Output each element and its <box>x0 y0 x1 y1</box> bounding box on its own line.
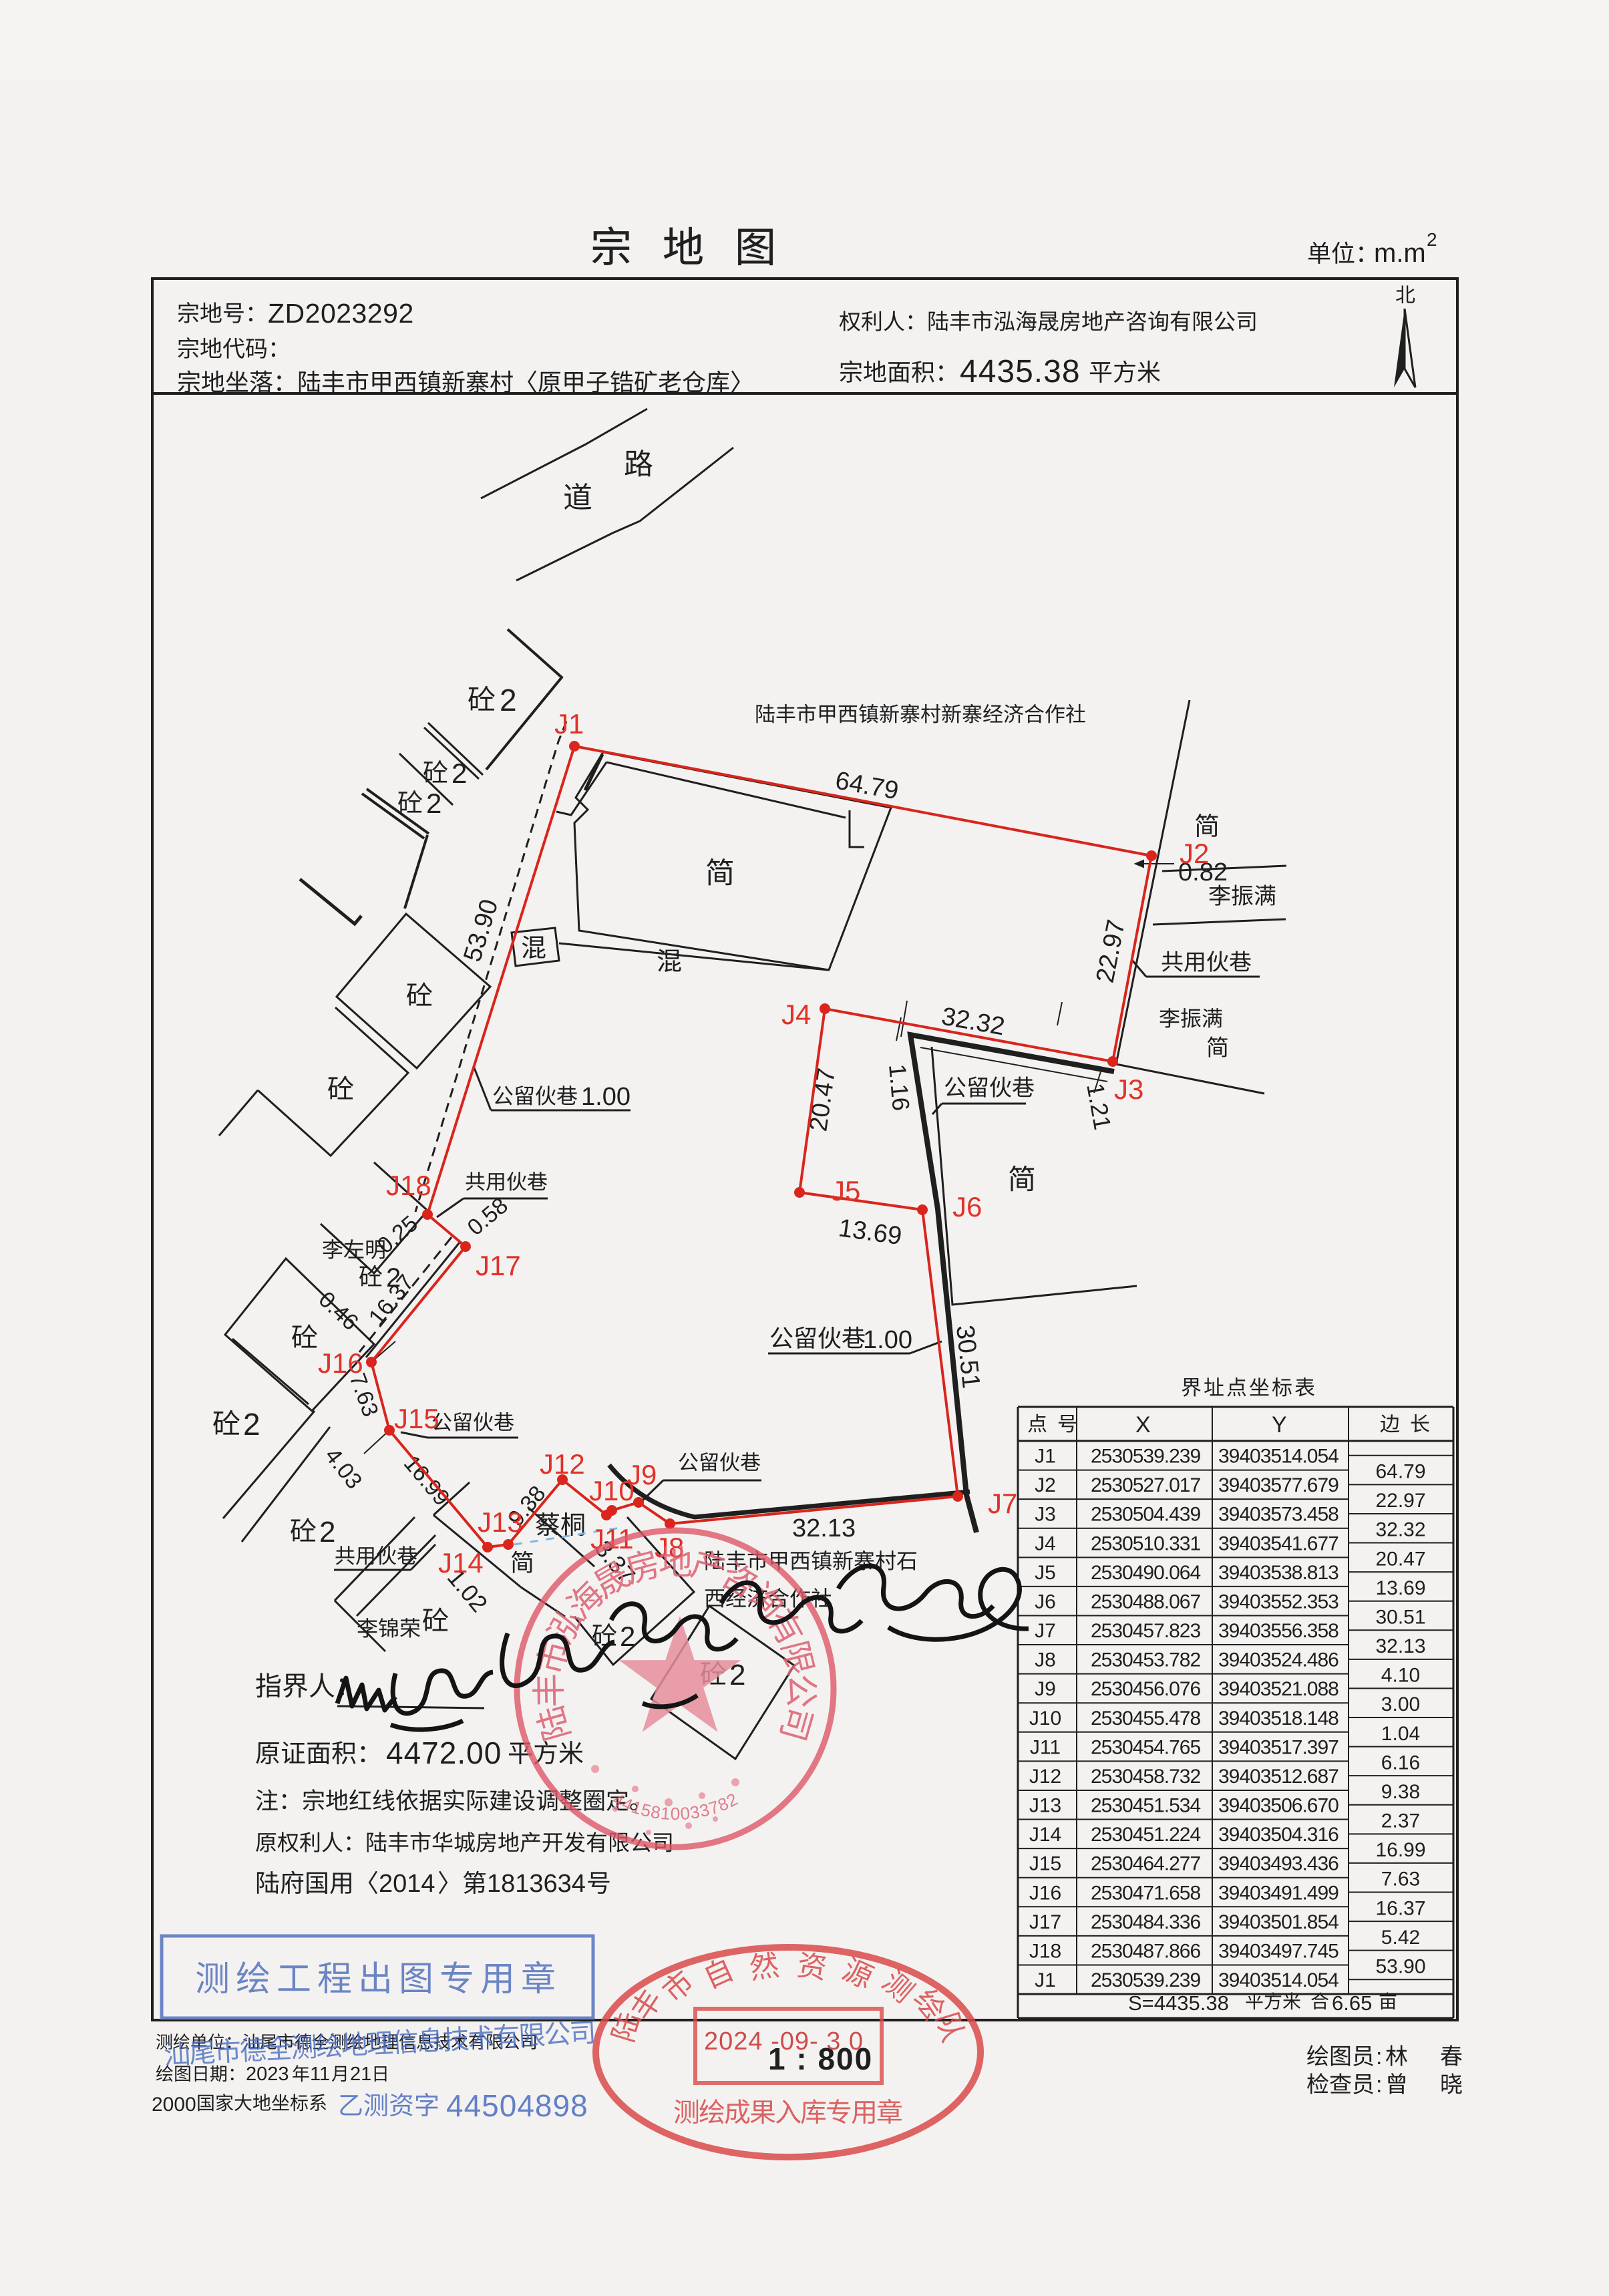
svg-text:J6: J6 <box>952 1191 982 1222</box>
svg-text:2.37: 2.37 <box>1381 1810 1420 1832</box>
svg-text:32.13: 32.13 <box>1375 1635 1425 1657</box>
svg-text:J2: J2 <box>1035 1474 1056 1496</box>
svg-text:39403556.358: 39403556.358 <box>1218 1620 1338 1642</box>
svg-text:J16: J16 <box>1029 1882 1061 1904</box>
svg-text:39403538.813: 39403538.813 <box>1218 1562 1338 1584</box>
svg-text:J13: J13 <box>1029 1795 1061 1817</box>
svg-text:J16: J16 <box>318 1347 363 1379</box>
svg-text::: : <box>1376 2072 1382 2098</box>
svg-text:ZD2023292: ZD2023292 <box>268 298 414 329</box>
svg-text:16.99: 16.99 <box>1375 1839 1425 1861</box>
svg-text:2530510.331: 2530510.331 <box>1091 1532 1200 1554</box>
svg-text:J17: J17 <box>476 1250 521 1281</box>
svg-text:J2: J2 <box>1180 838 1209 869</box>
svg-text:2530488.067: 2530488.067 <box>1091 1591 1200 1613</box>
svg-text:J1: J1 <box>1035 1446 1056 1468</box>
svg-text:J3: J3 <box>1035 1504 1056 1526</box>
svg-text:39403497.745: 39403497.745 <box>1218 1940 1338 1962</box>
svg-text:2: 2 <box>500 683 517 717</box>
svg-text:2530504.439: 2530504.439 <box>1091 1504 1200 1526</box>
svg-text:2530454.765: 2530454.765 <box>1091 1736 1200 1758</box>
svg-text:J8: J8 <box>655 1532 684 1563</box>
svg-text:2530451.534: 2530451.534 <box>1091 1795 1200 1817</box>
svg-text:3.00: 3.00 <box>1381 1693 1420 1715</box>
svg-text:53.90: 53.90 <box>1375 1955 1425 1977</box>
svg-text:16.37: 16.37 <box>1375 1897 1425 1919</box>
svg-text:32.32: 32.32 <box>1375 1519 1425 1541</box>
svg-text:7.63: 7.63 <box>1381 1868 1420 1891</box>
svg-text:0: 0 <box>671 1804 680 1824</box>
svg-text:2: 2 <box>452 758 467 789</box>
svg-text:J5: J5 <box>1035 1562 1056 1584</box>
svg-text:J8: J8 <box>1035 1649 1056 1671</box>
svg-text:J6: J6 <box>1035 1591 1056 1613</box>
svg-text:2530456.076: 2530456.076 <box>1091 1678 1200 1700</box>
svg-text:J1: J1 <box>554 708 584 740</box>
svg-text:J18: J18 <box>386 1170 431 1201</box>
svg-text:J17: J17 <box>1029 1911 1061 1933</box>
svg-text:1.16: 1.16 <box>884 1063 915 1112</box>
svg-text:39403493.436: 39403493.436 <box>1218 1853 1338 1875</box>
svg-text:39403518.148: 39403518.148 <box>1218 1707 1338 1730</box>
svg-text:J12: J12 <box>540 1448 585 1480</box>
svg-text:39403541.677: 39403541.677 <box>1218 1532 1338 1554</box>
svg-text:J14: J14 <box>1029 1824 1061 1846</box>
svg-text:2530471.658: 2530471.658 <box>1091 1882 1200 1904</box>
svg-text:20.47: 20.47 <box>1375 1548 1425 1570</box>
svg-text:39403521.088: 39403521.088 <box>1218 1678 1338 1700</box>
svg-text:4472.00: 4472.00 <box>386 1736 502 1770</box>
svg-text:2530451.224: 2530451.224 <box>1091 1824 1200 1846</box>
svg-text:2530490.064: 2530490.064 <box>1091 1562 1200 1584</box>
svg-text:39403573.458: 39403573.458 <box>1218 1504 1338 1526</box>
svg-text:6.16: 6.16 <box>1381 1752 1420 1774</box>
svg-text:39403517.397: 39403517.397 <box>1218 1736 1338 1758</box>
svg-text:2: 2 <box>1427 229 1437 250</box>
svg-text:39403501.854: 39403501.854 <box>1218 1911 1338 1933</box>
svg-text:J10: J10 <box>1029 1707 1061 1730</box>
svg-text::: : <box>1376 2044 1382 2070</box>
svg-text:39403577.679: 39403577.679 <box>1218 1474 1338 1496</box>
svg-text:39403506.670: 39403506.670 <box>1218 1795 1338 1817</box>
svg-text:4435.38: 4435.38 <box>960 354 1081 389</box>
svg-text:J7: J7 <box>988 1488 1017 1519</box>
svg-text:44504898: 44504898 <box>446 2088 588 2123</box>
svg-text:39403552.353: 39403552.353 <box>1218 1591 1338 1613</box>
svg-text:2: 2 <box>243 1407 260 1442</box>
svg-text:J15: J15 <box>394 1403 439 1434</box>
svg-text:J13: J13 <box>478 1506 523 1538</box>
svg-text:22.97: 22.97 <box>1375 1490 1425 1512</box>
svg-text:39403491.499: 39403491.499 <box>1218 1882 1338 1904</box>
svg-text:J3: J3 <box>1114 1074 1143 1105</box>
svg-text:J14: J14 <box>438 1547 484 1579</box>
svg-text:39403524.486: 39403524.486 <box>1218 1649 1338 1671</box>
svg-text:39403504.316: 39403504.316 <box>1218 1824 1338 1846</box>
svg-text:m.m: m.m <box>1374 238 1426 268</box>
svg-text:2023: 2023 <box>246 2064 289 2085</box>
svg-text:30.51: 30.51 <box>1375 1606 1425 1628</box>
svg-text:1813634: 1813634 <box>487 1870 586 1898</box>
svg-text:2024 -09- 3 0: 2024 -09- 3 0 <box>704 2027 864 2056</box>
svg-text:2530453.782: 2530453.782 <box>1091 1649 1200 1671</box>
svg-text:39403514.054: 39403514.054 <box>1218 1969 1338 1991</box>
svg-text:S=4435.38: S=4435.38 <box>1128 1991 1229 2015</box>
svg-text:J7: J7 <box>1035 1620 1056 1642</box>
svg-text:J15: J15 <box>1029 1853 1061 1875</box>
svg-text:Y: Y <box>1272 1412 1287 1438</box>
svg-text:64.79: 64.79 <box>1375 1461 1425 1483</box>
svg-text:5.42: 5.42 <box>1381 1927 1420 1949</box>
svg-text:1.00: 1.00 <box>581 1083 631 1111</box>
svg-text:J18: J18 <box>1029 1940 1061 1962</box>
svg-text:11: 11 <box>310 2064 330 2085</box>
svg-text:1.04: 1.04 <box>1381 1723 1420 1745</box>
svg-text:2530455.478: 2530455.478 <box>1091 1707 1200 1730</box>
svg-text:J5: J5 <box>831 1175 860 1206</box>
svg-text:13.69: 13.69 <box>1375 1577 1425 1599</box>
svg-text:2: 2 <box>620 1621 635 1652</box>
svg-text:2530539.239: 2530539.239 <box>1091 1969 1200 1991</box>
svg-text:J12: J12 <box>1029 1766 1061 1788</box>
svg-text:X: X <box>1135 1412 1151 1438</box>
svg-text:2530539.239: 2530539.239 <box>1091 1446 1200 1468</box>
svg-text:2530484.336: 2530484.336 <box>1091 1911 1200 1933</box>
svg-text:2530458.732: 2530458.732 <box>1091 1766 1200 1788</box>
svg-text:2: 2 <box>319 1516 335 1548</box>
svg-text:39403512.687: 39403512.687 <box>1218 1766 1338 1788</box>
svg-text:J4: J4 <box>1035 1532 1056 1554</box>
svg-text:2530457.823: 2530457.823 <box>1091 1620 1200 1642</box>
svg-text:4.10: 4.10 <box>1381 1665 1420 1687</box>
svg-text:9.38: 9.38 <box>1381 1781 1420 1803</box>
svg-text:J1: J1 <box>1035 1969 1056 1991</box>
svg-text:2530527.017: 2530527.017 <box>1091 1474 1200 1496</box>
svg-text:2000: 2000 <box>152 2094 196 2116</box>
svg-text:J4: J4 <box>781 999 811 1030</box>
svg-text:2: 2 <box>426 788 441 819</box>
svg-text:2530464.277: 2530464.277 <box>1091 1853 1200 1875</box>
svg-text:2530487.866: 2530487.866 <box>1091 1940 1200 1962</box>
svg-text:6.65: 6.65 <box>1332 1991 1372 2015</box>
svg-text:J9: J9 <box>1035 1678 1056 1700</box>
svg-text:1.00: 1.00 <box>863 1326 912 1354</box>
svg-text:J10: J10 <box>589 1475 635 1506</box>
svg-text:32.13: 32.13 <box>792 1514 856 1542</box>
svg-text:39403514.054: 39403514.054 <box>1218 1446 1338 1468</box>
svg-text:J11: J11 <box>1030 1736 1061 1758</box>
svg-text:21: 21 <box>350 2064 371 2085</box>
svg-text:2014: 2014 <box>379 1870 435 1898</box>
